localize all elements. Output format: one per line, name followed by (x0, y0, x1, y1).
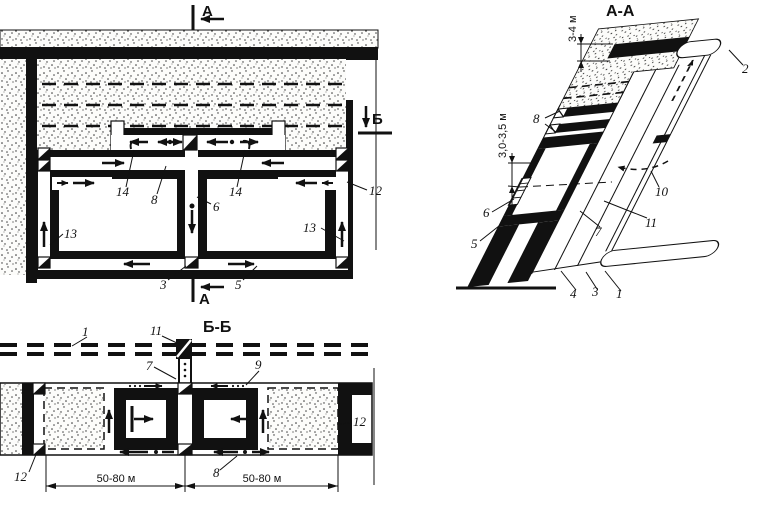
marker-b-letter: Б (372, 111, 383, 128)
marker-a-top-letter: А (202, 3, 213, 20)
label-14-left: 14 (116, 184, 130, 199)
label-11-bb: 11 (150, 323, 162, 338)
label-6-plan: 6 (213, 199, 220, 214)
label-7-aa: 7 (595, 224, 602, 239)
label-14-right: 14 (229, 184, 243, 199)
label-4-aa: 4 (570, 286, 577, 301)
dim-50-80-right: 50-80 м (243, 473, 282, 485)
bb-dimensions: 50-80 м 50-80 м (46, 455, 338, 492)
label-5-plan: 5 (235, 277, 242, 292)
marker-a-bottom-letter: А (199, 291, 210, 308)
label-13-left: 13 (64, 226, 78, 241)
label-2-aa: 2 (742, 61, 749, 76)
section-marker-a-top: А (193, 3, 224, 30)
goaf-stipple (558, 19, 699, 109)
left-wall (26, 59, 37, 283)
upper-drift-dashed (0, 339, 372, 359)
dim-3-4m: 3-4 м (567, 15, 579, 42)
inclined-seam (467, 5, 772, 287)
section-aa-view: А-А (456, 3, 772, 301)
label-3-aa: 3 (591, 284, 599, 299)
raise-channel (179, 358, 191, 384)
section-marker-b: Б (358, 106, 392, 133)
central-raise (185, 135, 198, 270)
label-9-bb: 9 (255, 357, 262, 372)
label-3-plan: 3 (159, 277, 167, 292)
label-1-aa: 1 (616, 286, 623, 301)
section-bb-title: Б-Б (203, 319, 231, 336)
label-12-bb-left: 12 (14, 469, 28, 484)
return-air-curve (618, 161, 668, 169)
label-13-right: 13 (303, 220, 317, 235)
dim-3035m: 3,0-3,5 м (497, 113, 509, 158)
label-10-aa: 10 (655, 184, 669, 199)
mining-scheme-drawing: 14 8 14 6 12 13 13 3 5 А А Б А-А (0, 0, 772, 512)
label-11-aa: 11 (645, 215, 657, 230)
label-8-aa: 8 (533, 111, 540, 126)
label-6-aa: 6 (483, 205, 490, 220)
dim-50-80-left: 50-80 м (97, 473, 136, 485)
technical-drawing-page: 14 8 14 6 12 13 13 3 5 А А Б А-А (0, 0, 772, 512)
plan-view: 14 8 14 6 12 13 13 3 5 А А Б (0, 3, 392, 308)
section-aa-title: А-А (606, 3, 635, 20)
label-12-bb-right: 12 (353, 414, 367, 429)
label-1-bb: 1 (82, 324, 89, 339)
label-8-plan: 8 (151, 192, 158, 207)
bb-band (0, 368, 374, 485)
label-7-bb: 7 (146, 358, 153, 373)
lower-drift-tube (598, 240, 722, 268)
label-5-aa: 5 (471, 236, 478, 251)
section-marker-a-bottom: А (193, 276, 224, 308)
left-rock-column (0, 59, 26, 275)
label-8-bb: 8 (213, 465, 220, 480)
label-12-plan: 12 (369, 183, 383, 198)
section-bb-view: Б-Б (0, 319, 374, 492)
